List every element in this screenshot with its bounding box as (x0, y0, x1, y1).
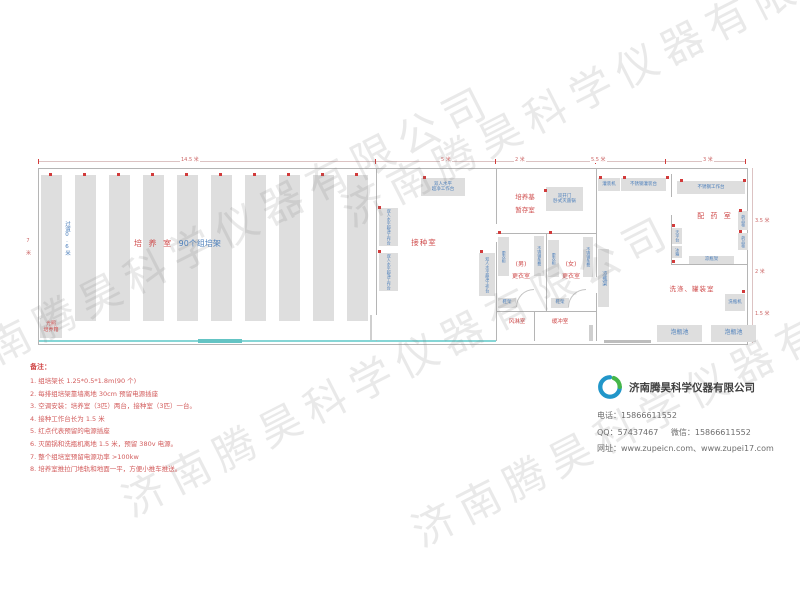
steel-worktable: 不锈钢工作台 (677, 181, 745, 194)
door-arc (568, 289, 586, 307)
dimension-tick (665, 159, 666, 164)
aisle-label: 过道0.6米 (63, 221, 71, 306)
power-socket-dot (599, 176, 602, 179)
floor-plan: 过道0.6米 培 养 室 90个组培架 光照 培养箱 接种室 双人水平 超净工作… (38, 168, 748, 345)
note-item: 3. 空调安装：培养室（3匹）两台，接种室（3匹）一台。 (30, 400, 320, 413)
note-item: 1. 组培架长 1.25*0.5*1.8m(90 个) (30, 375, 320, 388)
dimension-line-top (38, 161, 746, 162)
shoe-rack: 鞋架 (498, 298, 516, 308)
power-socket-dot (623, 176, 626, 179)
company-qq-wechat: QQ：57437467 微信：15866611552 (597, 427, 797, 438)
power-socket-dot (83, 173, 86, 176)
note-item: 5. 红点代表预留的电源插座 (30, 425, 320, 438)
buffer-room-label: 缓冲室 (538, 318, 582, 327)
power-socket-dot (739, 230, 742, 233)
note-item: 4. 接种工作台长为 1.5 米 (30, 413, 320, 426)
culture-rack (313, 175, 334, 321)
culture-rack (41, 175, 62, 321)
dispensing-room-label: 配 药 室 (689, 211, 741, 223)
company-header: 济南腾昊科学仪器有限公司 (597, 374, 797, 400)
floor-plan-page: 济南腾昊科学仪器有限公司 济南腾昊科学仪器有限公司 济南腾昊科学仪器有限公司 济… (0, 0, 800, 600)
dimension-label: 2 米 (514, 158, 526, 163)
note-item: 7. 整个组培室预留电源功率 >100kw (30, 451, 320, 464)
company-qq: QQ：57437467 (597, 428, 658, 437)
door-arc (516, 289, 534, 307)
clean-bench: 双人水平 超净工作台 (421, 178, 465, 196)
clean-bench: 双人水平超净工作台 (479, 253, 495, 296)
power-socket-dot (672, 224, 675, 227)
fridge: 冰箱 (672, 246, 682, 258)
door-opening (670, 197, 673, 215)
dimension-label: 5 米 (440, 158, 452, 163)
bottle-cooling-rack: 凉瓶架 (689, 256, 734, 264)
culture-room-label: 培 养 室 90个组培架 (134, 238, 221, 249)
culture-rack (109, 175, 130, 321)
sliding-door-track (39, 340, 496, 342)
wall (534, 311, 535, 341)
bottle-washer: 洗瓶机 (725, 294, 745, 311)
light-incubator: 光照 培养箱 (40, 318, 62, 338)
power-socket-dot (672, 260, 675, 263)
dimension-label: 5.5 米 (590, 158, 607, 163)
dimension-tick (38, 159, 39, 164)
bottle-soaking-pool: 泡瓶池 (711, 325, 756, 342)
dimension-label: 2 米 (754, 270, 766, 275)
air-shower-label: 风淋室 (500, 318, 534, 327)
power-socket-dot (739, 209, 742, 212)
power-socket-dot (742, 290, 745, 293)
bottle-cooling-rack: 凉瓶架 (598, 249, 609, 307)
power-socket-dot (49, 173, 52, 176)
women-changing-room-label: (女) 更衣室 (555, 259, 587, 283)
power-socket-dot (219, 173, 222, 176)
company-phone: 电话：15866611552 (597, 410, 797, 421)
dimension-tick (745, 159, 746, 164)
dimension-tick (495, 159, 496, 164)
power-socket-dot (151, 173, 154, 176)
power-socket-dot (321, 173, 324, 176)
note-item: 2. 每排组培架靠墙离地 30cm 预留电源插座 (30, 388, 320, 401)
men-changing-room-label: (男) 更衣室 (505, 259, 537, 283)
note-item: 6. 灭菌锅和洗瓶机离地 1.5 米，预留 380v 电源。 (30, 438, 320, 451)
power-socket-dot (355, 173, 358, 176)
medicine-cabinet: 药品柜 (738, 233, 748, 250)
dimension-label: 3.5 米 (754, 219, 771, 224)
medium-storage-label: 培养基 暂存室 (502, 191, 548, 217)
clean-bench: 双人水平超净工作台 (379, 208, 398, 246)
culture-rack-count: 90个组培架 (179, 239, 221, 248)
filling-table: 不锈钢灌装台 (621, 178, 666, 191)
wall (546, 233, 547, 311)
dimension-line-right (752, 168, 753, 343)
power-socket-dot (498, 231, 501, 234)
bottle-soaking-pool: 泡瓶池 (657, 325, 702, 342)
culture-rack (245, 175, 266, 321)
sterilizer: 双开门 卧式灭菌锅 (546, 187, 583, 211)
power-socket-dot (287, 173, 290, 176)
power-socket-dot (544, 189, 547, 192)
dimension-label: 1.5 米 (754, 312, 771, 317)
door-post (589, 325, 593, 341)
notes-block: 备注： 1. 组培架长 1.25*0.5*1.8m(90 个) 2. 每排组培架… (30, 362, 320, 476)
dimension-tick (375, 159, 376, 164)
sliding-door (604, 340, 651, 343)
power-socket-dot (117, 173, 120, 176)
culture-rack (75, 175, 96, 321)
medicine-cabinet: 药品柜 (738, 211, 748, 230)
power-socket-dot (480, 250, 483, 253)
power-socket-dot (378, 250, 381, 253)
wall (596, 169, 597, 341)
balance-table: 天平台 (672, 228, 682, 244)
culture-room-name: 培 养 室 (134, 239, 173, 248)
power-socket-dot (185, 173, 188, 176)
inoculation-room-label: 接种室 (394, 237, 454, 250)
door-opening (375, 315, 378, 340)
wall (496, 169, 497, 341)
company-block: 济南腾昊科学仪器有限公司 电话：15866611552 QQ：57437467 … (597, 374, 797, 454)
power-socket-dot (253, 173, 256, 176)
wall (496, 311, 596, 312)
dimension-label: 14.5 米 (180, 158, 200, 163)
sliding-door (198, 339, 242, 343)
company-name: 济南腾昊科学仪器有限公司 (629, 380, 755, 395)
power-socket-dot (549, 231, 552, 234)
company-wechat: 微信：15866611552 (671, 428, 751, 437)
wall (671, 264, 747, 265)
dimension-label: 7 米 (24, 238, 31, 255)
culture-rack (279, 175, 300, 321)
power-socket-dot (743, 179, 746, 182)
clean-bench: 双人水平超净工作台 (379, 253, 398, 291)
company-logo-icon (597, 374, 623, 400)
door-leaf (370, 315, 372, 340)
filling-machine: 灌装机 (598, 178, 620, 191)
company-website: 网址：www.zupeicn.com、www.zupei17.com (597, 443, 797, 454)
dimension-label: 3 米 (702, 158, 714, 163)
power-socket-dot (423, 176, 426, 179)
culture-rack (347, 175, 368, 321)
note-item: 8. 培养室推拉门地轨和地面一平，方便小推车推送。 (30, 463, 320, 476)
shoe-rack: 鞋架 (551, 298, 569, 308)
power-socket-dot (680, 179, 683, 182)
power-socket-dot (666, 176, 669, 179)
washing-room-label: 洗涤、罐装室 (657, 284, 727, 295)
notes-title: 备注： (30, 362, 320, 372)
power-socket-dot (378, 206, 381, 209)
